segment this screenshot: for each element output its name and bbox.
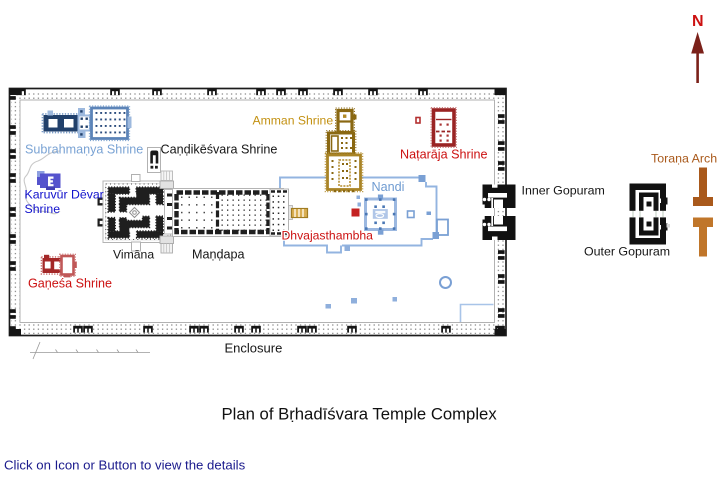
svg-text:Subrahmaṇya Shrine: Subrahmaṇya Shrine	[25, 143, 143, 157]
svg-text:Naṭarāja Shrine: Naṭarāja Shrine	[400, 148, 488, 162]
svg-text:Maṇḍapa: Maṇḍapa	[192, 247, 245, 261]
svg-text:Dhvajasthambha: Dhvajasthambha	[282, 229, 374, 243]
svg-text:Shrine: Shrine	[25, 202, 61, 216]
svg-text:Inner Gopuram: Inner Gopuram	[522, 184, 605, 198]
svg-text:N: N	[692, 13, 704, 30]
svg-text:Gaṇeśa Shrine: Gaṇeśa Shrine	[28, 277, 112, 291]
svg-text:Enclosure: Enclosure	[225, 341, 283, 356]
svg-text:Karuvūr Dēvar: Karuvūr Dēvar	[25, 188, 104, 202]
svg-text:Nandi: Nandi	[372, 180, 405, 194]
svg-text:Vimāna: Vimāna	[113, 248, 154, 262]
svg-text:Amman Shrine: Amman Shrine	[253, 114, 334, 128]
svg-text:Click on Icon or Button to vie: Click on Icon or Button to view the deta…	[4, 457, 246, 472]
svg-text:Outer Gopuram: Outer Gopuram	[584, 245, 670, 259]
svg-text:Plan of Bṛhadīśvara Temple Com: Plan of Bṛhadīśvara Temple Complex	[222, 405, 498, 424]
svg-text:Toraṇa Arch: Toraṇa Arch	[651, 152, 717, 166]
svg-text:Caṇḍikēśvara Shrine: Caṇḍikēśvara Shrine	[161, 143, 278, 157]
